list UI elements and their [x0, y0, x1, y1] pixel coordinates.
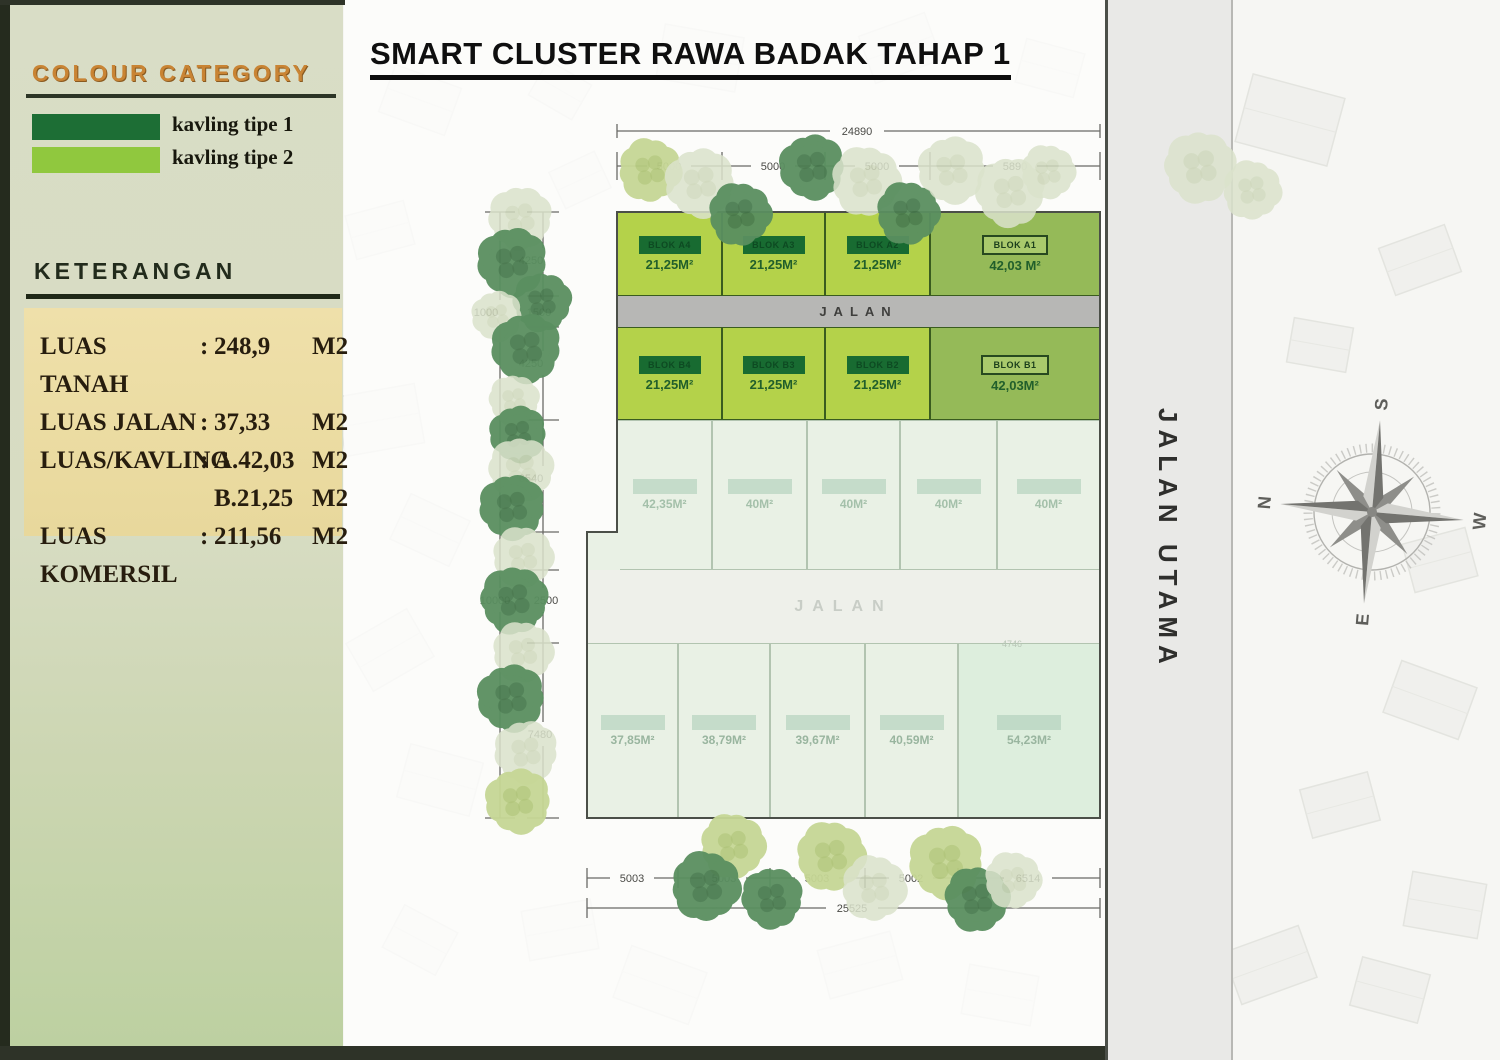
- keterangan-stats: LUAS TANAH: 248,9M2 LUAS JALAN: 37,33M2 …: [24, 308, 342, 536]
- kavling-tipe-2-label: kavling tipe 2: [172, 145, 293, 170]
- block-label: BLOK B2: [847, 356, 909, 374]
- road-jalan-1: JALAN: [617, 296, 1100, 327]
- block-label-faint: [633, 479, 697, 494]
- page-title: SMART CLUSTER RAWA BADAK TAHAP 1: [370, 36, 1011, 80]
- block-area: 21,25M²: [854, 257, 902, 272]
- divider: [26, 294, 340, 299]
- block-area: 40M²: [840, 497, 867, 511]
- block-c3: 40M²: [807, 420, 900, 570]
- block-area: 21,25M²: [646, 377, 694, 392]
- block-label-faint: [917, 479, 981, 494]
- stat-row: B.21,25M2: [40, 480, 336, 518]
- block-c2: 40M²: [712, 420, 807, 570]
- block-label: BLOK A3: [743, 236, 805, 254]
- block-a2: BLOK A2 21,25M²: [825, 212, 930, 296]
- kavling-tipe-1-label: kavling tipe 1: [172, 112, 293, 137]
- block-d5: 54,23M²: [958, 643, 1100, 818]
- keterangan-title: KETERANGAN: [34, 258, 236, 285]
- legend-panel: COLOUR CATEGORY kavling tipe 1 kavling t…: [10, 0, 343, 1060]
- stat-row: LUAS/KAVLING: A.42,03M2: [40, 442, 336, 480]
- compass-w: W: [1469, 512, 1490, 531]
- block-b1: BLOK B1 42,03M²: [930, 327, 1100, 420]
- stat-row: LUAS KOMERSIL: 211,56M2: [40, 518, 336, 594]
- block-area: 42,35M²: [642, 497, 686, 511]
- frame-top-edge: [0, 0, 345, 5]
- block-label: BLOK B3: [743, 356, 805, 374]
- block-label: BLOK A4: [639, 236, 701, 254]
- block-d4: 40,59M²: [865, 643, 958, 818]
- block-area: 37,85M²: [610, 733, 654, 747]
- kavling-tipe-1-swatch: [32, 114, 160, 140]
- block-d1: 37,85M²: [587, 643, 678, 818]
- block-area: 21,25M²: [854, 377, 902, 392]
- block-label-faint: [1017, 479, 1081, 494]
- block-area: 40M²: [746, 497, 773, 511]
- block-b4: BLOK B4 21,25M²: [617, 327, 722, 420]
- road-jalan-2: JALAN: [587, 570, 1100, 643]
- block-label: BLOK A1: [982, 235, 1049, 255]
- compass-s: S: [1371, 398, 1392, 412]
- block-area: 21,25M²: [750, 377, 798, 392]
- block-area: 40M²: [1035, 497, 1062, 511]
- block-area: 40M²: [935, 497, 962, 511]
- main-road-label: JALAN UTAMA: [1152, 408, 1183, 671]
- block-c5: 40M²: [997, 420, 1100, 570]
- block-a3: BLOK A3 21,25M²: [722, 212, 825, 296]
- block-label-faint: [880, 715, 944, 730]
- block-area: 21,25M²: [646, 257, 694, 272]
- block-area: 42,03M²: [991, 378, 1039, 393]
- block-label: BLOK B4: [639, 356, 701, 374]
- block-area: 38,79M²: [702, 733, 746, 747]
- frame-bottom-edge: [0, 1046, 1105, 1060]
- block-label-faint: [601, 715, 665, 730]
- block-a4: BLOK A4 21,25M²: [617, 212, 722, 296]
- block-b3: BLOK B3 21,25M²: [722, 327, 825, 420]
- block-label: BLOK A2: [847, 236, 909, 254]
- main-road-strip: JALAN UTAMA: [1105, 0, 1233, 1060]
- divider: [26, 94, 336, 98]
- block-d3: 39,67M²: [770, 643, 865, 818]
- block-label-faint: [692, 715, 756, 730]
- block-c1: 42,35M²: [617, 420, 712, 570]
- block-area: 40,59M²: [889, 733, 933, 747]
- block-a1: BLOK A1 42,03 M²: [930, 212, 1100, 296]
- block-c4: 40M²: [900, 420, 997, 570]
- block-label-faint: [997, 715, 1061, 730]
- compass-e: E: [1352, 613, 1373, 627]
- legend-title: COLOUR CATEGORY: [32, 60, 311, 87]
- frame-left-edge: [0, 0, 10, 1060]
- compass-rose-icon: N S W E: [1242, 382, 1500, 642]
- block-label-faint: [786, 715, 850, 730]
- block-label: BLOK B1: [981, 355, 1048, 375]
- block-area: 54,23M²: [1007, 733, 1051, 747]
- plan-notch: [587, 532, 620, 570]
- stat-row: LUAS TANAH: 248,9M2: [40, 328, 336, 404]
- block-area: 21,25M²: [750, 257, 798, 272]
- block-area: 42,03 M²: [989, 258, 1040, 273]
- site-plan-page: BLOK A4 21,25M² BLOK A3 21,25M² BLOK A2 …: [0, 0, 1500, 1060]
- kavling-tipe-2-swatch: [32, 147, 160, 173]
- block-d2: 38,79M²: [678, 643, 770, 818]
- block-label-faint: [822, 479, 886, 494]
- block-area: 39,67M²: [795, 733, 839, 747]
- compass-n: N: [1254, 495, 1275, 510]
- block-label-faint: [728, 479, 792, 494]
- stat-row: LUAS JALAN: 37,33M2: [40, 404, 336, 442]
- block-b2: BLOK B2 21,25M²: [825, 327, 930, 420]
